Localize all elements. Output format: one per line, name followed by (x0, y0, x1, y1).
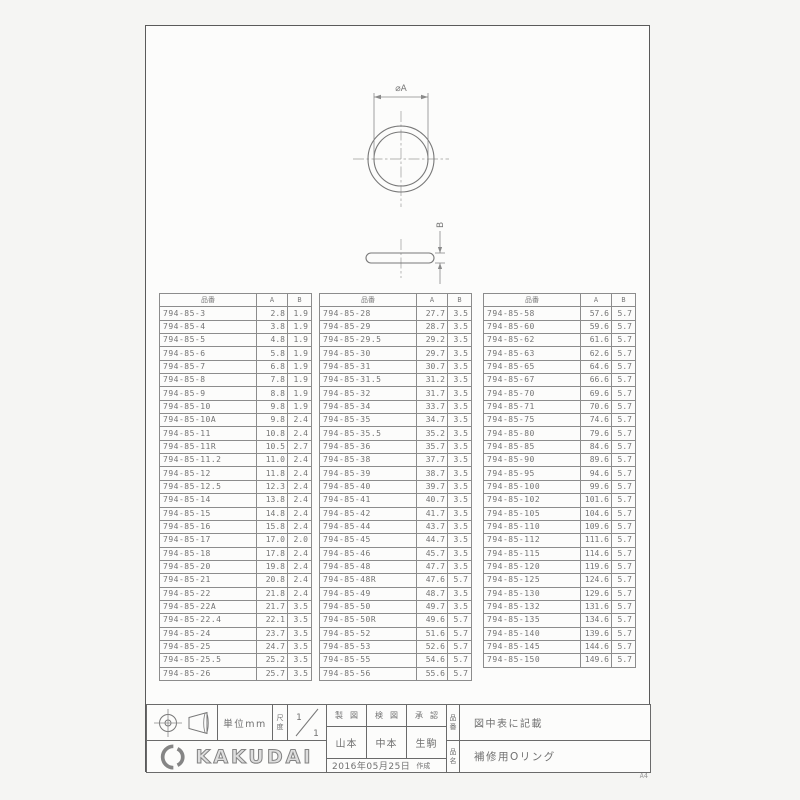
table-cell: 2.8 (257, 307, 288, 320)
parts-table-1: 品番 A B 794-85-32.81.9794-85-43.81.9794-8… (159, 293, 312, 681)
table-row: 794-85-10099.65.7 (484, 480, 636, 493)
table-row: 794-85-29.529.23.5 (320, 334, 472, 347)
table-cell: 794-85-62 (484, 334, 581, 347)
table-cell: 7.8 (257, 374, 288, 387)
table-row: 794-85-145144.65.7 (484, 640, 636, 653)
table-cell: 3.5 (448, 494, 472, 507)
table-cell: 5.7 (612, 507, 636, 520)
table-row: 794-85-5352.65.7 (320, 640, 472, 653)
table-row: 794-85-3433.73.5 (320, 400, 472, 413)
table-cell: 1.9 (288, 360, 312, 373)
table-cell: 5.7 (612, 347, 636, 360)
table-cell: 3.5 (448, 467, 472, 480)
table-cell: 794-85-53 (320, 640, 417, 653)
table-cell: 2.4 (288, 560, 312, 573)
table-cell: 2.4 (288, 574, 312, 587)
table-cell: 5.7 (612, 320, 636, 333)
table-cell: 794-85-140 (484, 627, 581, 640)
table-row: 794-85-130129.65.7 (484, 587, 636, 600)
table-cell: 5.7 (612, 467, 636, 480)
table-cell: 794-85-67 (484, 374, 581, 387)
part-number-value-cell: 図中表に記載 (459, 704, 651, 741)
table-cell: 794-85-29.5 (320, 334, 417, 347)
table-cell: 70.6 (581, 400, 612, 413)
table-row: 794-85-43.81.9 (160, 320, 312, 333)
table-cell: 5.7 (612, 640, 636, 653)
table-cell: 3.5 (448, 414, 472, 427)
table-row: 794-85-3231.73.5 (320, 387, 472, 400)
table-cell: 794-85-120 (484, 560, 581, 573)
table-cell: 13.8 (257, 494, 288, 507)
parts-table-3-body: 794-85-5857.65.7794-85-6059.65.7794-85-6… (484, 307, 636, 667)
table-cell: 3.5 (288, 654, 312, 667)
table-cell: 5.7 (612, 307, 636, 320)
table-cell: 3.5 (288, 627, 312, 640)
table-cell: 794-85-6 (160, 347, 257, 360)
table-cell: 794-85-28 (320, 307, 417, 320)
col-header-a: A (257, 294, 288, 307)
table-cell: 5.7 (612, 440, 636, 453)
table-row: 794-85-3029.73.5 (320, 347, 472, 360)
projection-symbol-cell (146, 704, 218, 741)
table-cell: 49.7 (417, 600, 448, 613)
table-cell: 794-85-65 (484, 360, 581, 373)
table-row: 794-85-102101.65.7 (484, 494, 636, 507)
table-row: 794-85-3534.73.5 (320, 414, 472, 427)
table-cell: 794-85-115 (484, 547, 581, 560)
table-cell: 794-85-12.5 (160, 480, 257, 493)
col-header-b: B (612, 294, 636, 307)
table-cell: 119.6 (581, 560, 612, 573)
table-cell: 144.6 (581, 640, 612, 653)
table-cell: 794-85-70 (484, 387, 581, 400)
table-cell: 51.6 (417, 627, 448, 640)
col-header-a: A (417, 294, 448, 307)
table-cell: 794-85-125 (484, 574, 581, 587)
table-cell: 794-85-49 (320, 587, 417, 600)
table-cell: 794-85-58 (484, 307, 581, 320)
table-cell: 794-85-48 (320, 560, 417, 573)
table-cell: 11.0 (257, 454, 288, 467)
table-cell: 794-85-105 (484, 507, 581, 520)
table-cell: 794-85-35.5 (320, 427, 417, 440)
col-header-b: B (448, 294, 472, 307)
table-cell: 15.8 (257, 520, 288, 533)
table-cell: 3.5 (448, 360, 472, 373)
table-cell: 794-85-45 (320, 534, 417, 547)
table-row: 794-85-35.535.23.5 (320, 427, 472, 440)
parts-table-1-body: 794-85-32.81.9794-85-43.81.9794-85-54.81… (160, 307, 312, 681)
parts-table-3: 品番 A B 794-85-5857.65.7794-85-6059.65.77… (483, 293, 636, 668)
table-cell: 3.5 (448, 440, 472, 453)
unit-cell: 単位mm (217, 704, 273, 741)
scale-label-cell: 尺度 (272, 704, 288, 741)
table-row: 794-85-5554.65.7 (320, 654, 472, 667)
table-cell: 794-85-10 (160, 400, 257, 413)
table-cell: 794-85-12 (160, 467, 257, 480)
table-cell: 3.5 (448, 387, 472, 400)
table-row: 794-85-2423.73.5 (160, 627, 312, 640)
table-cell: 5.7 (612, 480, 636, 493)
table-cell: 74.6 (581, 414, 612, 427)
col-header-part-number: 品番 (320, 294, 417, 307)
table-cell: 794-85-145 (484, 640, 581, 653)
table-cell: 5.7 (448, 627, 472, 640)
table-row: 794-85-105104.65.7 (484, 507, 636, 520)
table-cell: 794-85-25 (160, 640, 257, 653)
table-cell: 54.6 (417, 654, 448, 667)
table-cell: 3.5 (288, 667, 312, 680)
table-cell: 2.4 (288, 454, 312, 467)
approved-by-cell: 生駒 (406, 726, 447, 759)
table-cell: 101.6 (581, 494, 612, 507)
table-cell: 66.6 (581, 374, 612, 387)
table-row: 794-85-6059.65.7 (484, 320, 636, 333)
table-row: 794-85-87.81.9 (160, 374, 312, 387)
oring-drawing-views: ⌀A B (331, 51, 491, 286)
table-cell: 104.6 (581, 507, 612, 520)
table-row: 794-85-6564.65.7 (484, 360, 636, 373)
table-row: 794-85-7069.65.7 (484, 387, 636, 400)
table-cell: 3.5 (448, 480, 472, 493)
table-row: 794-85-1817.82.4 (160, 547, 312, 560)
table-header-row: 品番 A B (320, 294, 472, 307)
table-cell: 5.7 (612, 574, 636, 587)
table-row: 794-85-4443.73.5 (320, 520, 472, 533)
part-number-label-cell: 品番 (446, 704, 460, 741)
table-cell: 5.7 (612, 534, 636, 547)
table-row: 794-85-2120.82.4 (160, 574, 312, 587)
table-cell: 3.5 (288, 640, 312, 653)
table-cell: 1.9 (288, 374, 312, 387)
table-cell: 794-85-95 (484, 467, 581, 480)
table-cell: 2.4 (288, 507, 312, 520)
table-cell: 79.6 (581, 427, 612, 440)
table-row: 794-85-4948.73.5 (320, 587, 472, 600)
table-cell: 2.4 (288, 547, 312, 560)
table-cell: 25.2 (257, 654, 288, 667)
table-row: 794-85-2625.73.5 (160, 667, 312, 680)
scale-numerator: 1 (296, 713, 302, 723)
table-cell: 794-85-16 (160, 520, 257, 533)
table-cell: 5.7 (612, 400, 636, 413)
table-cell: 8.8 (257, 387, 288, 400)
table-cell: 5.7 (612, 427, 636, 440)
table-cell: 794-85-36 (320, 440, 417, 453)
table-cell: 9.8 (257, 400, 288, 413)
table-cell: 794-85-63 (484, 347, 581, 360)
table-cell: 794-85-31.5 (320, 374, 417, 387)
dim-arrow-left (374, 95, 381, 99)
table-cell: 33.7 (417, 400, 448, 413)
table-cell: 57.6 (581, 307, 612, 320)
table-cell: 2.4 (288, 467, 312, 480)
table-cell: 64.6 (581, 360, 612, 373)
table-cell: 794-85-31 (320, 360, 417, 373)
table-row: 794-85-4140.73.5 (320, 494, 472, 507)
table-cell: 794-85-132 (484, 600, 581, 613)
table-cell: 21.7 (257, 600, 288, 613)
table-cell: 2.0 (288, 534, 312, 547)
table-row: 794-85-6261.65.7 (484, 334, 636, 347)
table-cell: 3.5 (448, 560, 472, 573)
table-cell: 4.8 (257, 334, 288, 347)
table-cell: 139.6 (581, 627, 612, 640)
table-cell: 5.7 (612, 587, 636, 600)
table-cell: 1.9 (288, 307, 312, 320)
table-row: 794-85-32.81.9 (160, 307, 312, 320)
table-cell: 794-85-52 (320, 627, 417, 640)
table-cell: 1.9 (288, 347, 312, 360)
table-cell: 5.7 (612, 614, 636, 627)
table-row: 794-85-6766.65.7 (484, 374, 636, 387)
table-cell: 94.6 (581, 467, 612, 480)
table-cell: 21.8 (257, 587, 288, 600)
table-row: 794-85-8584.65.7 (484, 440, 636, 453)
table-cell: 794-85-5 (160, 334, 257, 347)
table-cell: 794-85-11 (160, 427, 257, 440)
table-cell: 2.4 (288, 520, 312, 533)
table-cell: 794-85-102 (484, 494, 581, 507)
thickness-arrow-down (438, 247, 442, 253)
table-cell: 2.4 (288, 480, 312, 493)
table-cell: 31.2 (417, 374, 448, 387)
table-cell: 5.7 (612, 494, 636, 507)
table-row: 794-85-4645.73.5 (320, 547, 472, 560)
table-cell: 3.5 (448, 587, 472, 600)
table-cell: 794-85-14 (160, 494, 257, 507)
table-cell: 22.1 (257, 614, 288, 627)
paper-size-label: A4 (600, 772, 648, 780)
table-cell: 61.6 (581, 334, 612, 347)
table-cell: 794-85-32 (320, 387, 417, 400)
table-row: 794-85-5857.65.7 (484, 307, 636, 320)
table-cell: 794-85-90 (484, 454, 581, 467)
table-cell: 2.7 (288, 440, 312, 453)
table-cell: 39.7 (417, 480, 448, 493)
table-cell: 27.7 (417, 307, 448, 320)
table-row: 794-85-140139.65.7 (484, 627, 636, 640)
table-cell: 794-85-85 (484, 440, 581, 453)
table-cell: 794-85-21 (160, 574, 257, 587)
table-cell: 12.3 (257, 480, 288, 493)
table-row: 794-85-50R49.65.7 (320, 614, 472, 627)
parts-table-2-body: 794-85-2827.73.5794-85-2928.73.5794-85-2… (320, 307, 472, 681)
table-cell: 11.8 (257, 467, 288, 480)
table-cell: 3.5 (448, 307, 472, 320)
table-cell: 5.7 (612, 600, 636, 613)
table-cell: 29.2 (417, 334, 448, 347)
col-header-part-number: 品番 (484, 294, 581, 307)
table-row: 794-85-54.81.9 (160, 334, 312, 347)
table-cell: 10.8 (257, 427, 288, 440)
table-cell: 794-85-50R (320, 614, 417, 627)
table-cell: 3.5 (448, 374, 472, 387)
table-cell: 2.4 (288, 494, 312, 507)
table-cell: 794-85-44 (320, 520, 417, 533)
table-cell: 1.9 (288, 387, 312, 400)
table-row: 794-85-112111.65.7 (484, 534, 636, 547)
table-row: 794-85-115114.65.7 (484, 547, 636, 560)
table-cell: 28.7 (417, 320, 448, 333)
table-cell: 29.7 (417, 347, 448, 360)
drafted-by-cell: 山本 (326, 726, 367, 759)
table-cell: 794-85-22 (160, 587, 257, 600)
table-cell: 89.6 (581, 454, 612, 467)
scale-denominator: 1 (313, 729, 319, 739)
table-cell: 794-85-8 (160, 374, 257, 387)
table-row: 794-85-31.531.23.5 (320, 374, 472, 387)
table-cell: 5.7 (448, 640, 472, 653)
table-row: 794-85-4241.73.5 (320, 507, 472, 520)
table-cell: 794-85-22.4 (160, 614, 257, 627)
table-cell: 5.7 (612, 547, 636, 560)
table-row: 794-85-2827.73.5 (320, 307, 472, 320)
table-cell: 5.7 (448, 574, 472, 587)
table-cell: 5.7 (612, 520, 636, 533)
table-cell: 134.6 (581, 614, 612, 627)
table-cell: 794-85-15 (160, 507, 257, 520)
table-row: 794-85-109.81.9 (160, 400, 312, 413)
table-cell: 794-85-7 (160, 360, 257, 373)
table-row: 794-85-2019.82.4 (160, 560, 312, 573)
table-cell: 43.7 (417, 520, 448, 533)
table-cell: 794-85-34 (320, 400, 417, 413)
table-row: 794-85-22.422.13.5 (160, 614, 312, 627)
kakudai-logo-mark-icon (160, 743, 190, 771)
table-row: 794-85-10A9.82.4 (160, 414, 312, 427)
table-row: 794-85-110109.65.7 (484, 520, 636, 533)
table-cell: 55.6 (417, 667, 448, 680)
table-row: 794-85-12.512.32.4 (160, 480, 312, 493)
table-cell: 794-85-4 (160, 320, 257, 333)
table-cell: 114.6 (581, 547, 612, 560)
table-cell: 1.9 (288, 334, 312, 347)
creation-date: 2016年05月25日 (332, 759, 410, 772)
brand-logo-text: KAKUDAI (196, 746, 314, 768)
table-row: 794-85-76.81.9 (160, 360, 312, 373)
table-cell: 3.5 (448, 454, 472, 467)
table-cell: 794-85-50 (320, 600, 417, 613)
table-row: 794-85-11.211.02.4 (160, 454, 312, 467)
table-cell: 5.7 (612, 454, 636, 467)
table-cell: 794-85-38 (320, 454, 417, 467)
table-cell: 794-85-112 (484, 534, 581, 547)
table-row: 794-85-132131.65.7 (484, 600, 636, 613)
table-row: 794-85-7170.65.7 (484, 400, 636, 413)
table-row: 794-85-9089.65.7 (484, 454, 636, 467)
table-cell: 3.5 (288, 600, 312, 613)
table-row: 794-85-4544.73.5 (320, 534, 472, 547)
table-cell: 5.7 (612, 414, 636, 427)
table-row: 794-85-1717.02.0 (160, 534, 312, 547)
table-cell: 794-85-3 (160, 307, 257, 320)
table-cell: 20.8 (257, 574, 288, 587)
table-cell: 5.7 (612, 387, 636, 400)
table-row: 794-85-7574.65.7 (484, 414, 636, 427)
table-row: 794-85-2524.73.5 (160, 640, 312, 653)
table-cell: 109.6 (581, 520, 612, 533)
table-row: 794-85-120119.65.7 (484, 560, 636, 573)
table-cell: 794-85-41 (320, 494, 417, 507)
table-cell: 5.7 (448, 667, 472, 680)
oring-side-view-profile (366, 253, 434, 263)
table-cell: 794-85-110 (484, 520, 581, 533)
thickness-b-dimension-label: B (436, 222, 446, 228)
table-cell: 794-85-71 (484, 400, 581, 413)
table-cell: 38.7 (417, 467, 448, 480)
table-cell: 794-85-18 (160, 547, 257, 560)
col-header-a: A (581, 294, 612, 307)
table-cell: 49.6 (417, 614, 448, 627)
table-cell: 794-85-135 (484, 614, 581, 627)
table-cell: 40.7 (417, 494, 448, 507)
checked-header-cell: 検図 (366, 704, 407, 727)
table-cell: 794-85-48R (320, 574, 417, 587)
table-cell: 9.8 (257, 414, 288, 427)
table-cell: 794-85-39 (320, 467, 417, 480)
table-cell: 794-85-100 (484, 480, 581, 493)
table-cell: 31.7 (417, 387, 448, 400)
table-cell: 129.6 (581, 587, 612, 600)
table-cell: 794-85-80 (484, 427, 581, 440)
part-name-label-cell: 品名 (446, 740, 460, 773)
table-cell: 48.7 (417, 587, 448, 600)
table-cell: 14.8 (257, 507, 288, 520)
table-row: 794-85-3837.73.5 (320, 454, 472, 467)
table-cell: 794-85-17 (160, 534, 257, 547)
table-cell: 17.0 (257, 534, 288, 547)
table-cell: 99.6 (581, 480, 612, 493)
table-row: 794-85-1413.82.4 (160, 494, 312, 507)
table-cell: 37.7 (417, 454, 448, 467)
table-cell: 24.7 (257, 640, 288, 653)
table-cell: 794-85-75 (484, 414, 581, 427)
table-cell: 3.5 (448, 347, 472, 360)
table-cell: 3.5 (448, 427, 472, 440)
checked-by-cell: 中本 (366, 726, 407, 759)
table-cell: 794-85-55 (320, 654, 417, 667)
date-cell: 2016年05月25日 作成 (326, 758, 447, 773)
table-row: 794-85-5049.73.5 (320, 600, 472, 613)
diameter-a-dimension-label: ⌀A (395, 84, 407, 94)
table-row: 794-85-125124.65.7 (484, 574, 636, 587)
table-row: 794-85-3635.73.5 (320, 440, 472, 453)
table-cell: 5.7 (612, 334, 636, 347)
table-cell: 5.8 (257, 347, 288, 360)
table-cell: 3.5 (448, 520, 472, 533)
table-cell: 3.5 (448, 547, 472, 560)
table-cell: 794-85-25.5 (160, 654, 257, 667)
table-cell: 794-85-56 (320, 667, 417, 680)
table-cell: 45.7 (417, 547, 448, 560)
table-cell: 3.5 (288, 614, 312, 627)
table-row: 794-85-22A21.73.5 (160, 600, 312, 613)
table-row: 794-85-1211.82.4 (160, 467, 312, 480)
table-cell: 794-85-9 (160, 387, 257, 400)
table-cell: 2.4 (288, 587, 312, 600)
table-cell: 44.7 (417, 534, 448, 547)
table-cell: 794-85-40 (320, 480, 417, 493)
table-cell: 3.5 (448, 400, 472, 413)
table-cell: 3.5 (448, 534, 472, 547)
drafted-header-cell: 製図 (326, 704, 367, 727)
table-row: 794-85-3130.73.5 (320, 360, 472, 373)
table-cell: 41.7 (417, 507, 448, 520)
table-cell: 794-85-26 (160, 667, 257, 680)
drawing-page: ⌀A B 品番 A B 794-85-32.81.9794-85-43.81.9 (0, 0, 800, 800)
table-cell: 149.6 (581, 654, 612, 667)
